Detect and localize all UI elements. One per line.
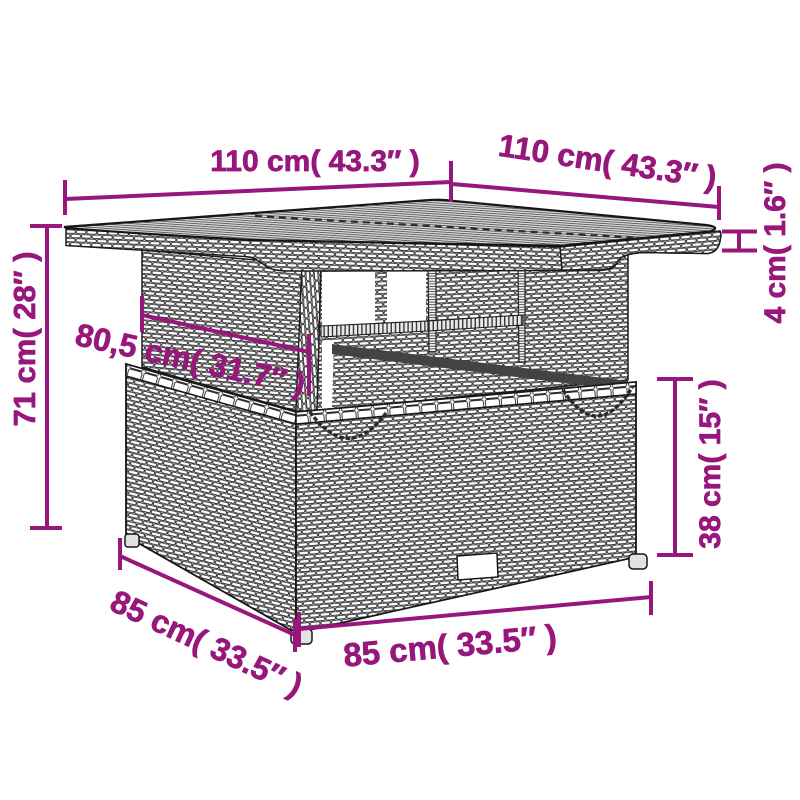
svg-text:71 cm( 28″ ): 71 cm( 28″ )	[7, 251, 42, 426]
svg-text:38 cm( 15″ ): 38 cm( 15″ )	[694, 379, 727, 548]
svg-text:110 cm( 43.3″ ): 110 cm( 43.3″ )	[210, 145, 420, 178]
svg-text:4 cm( 1.6″ ): 4 cm( 1.6″ )	[759, 162, 792, 323]
